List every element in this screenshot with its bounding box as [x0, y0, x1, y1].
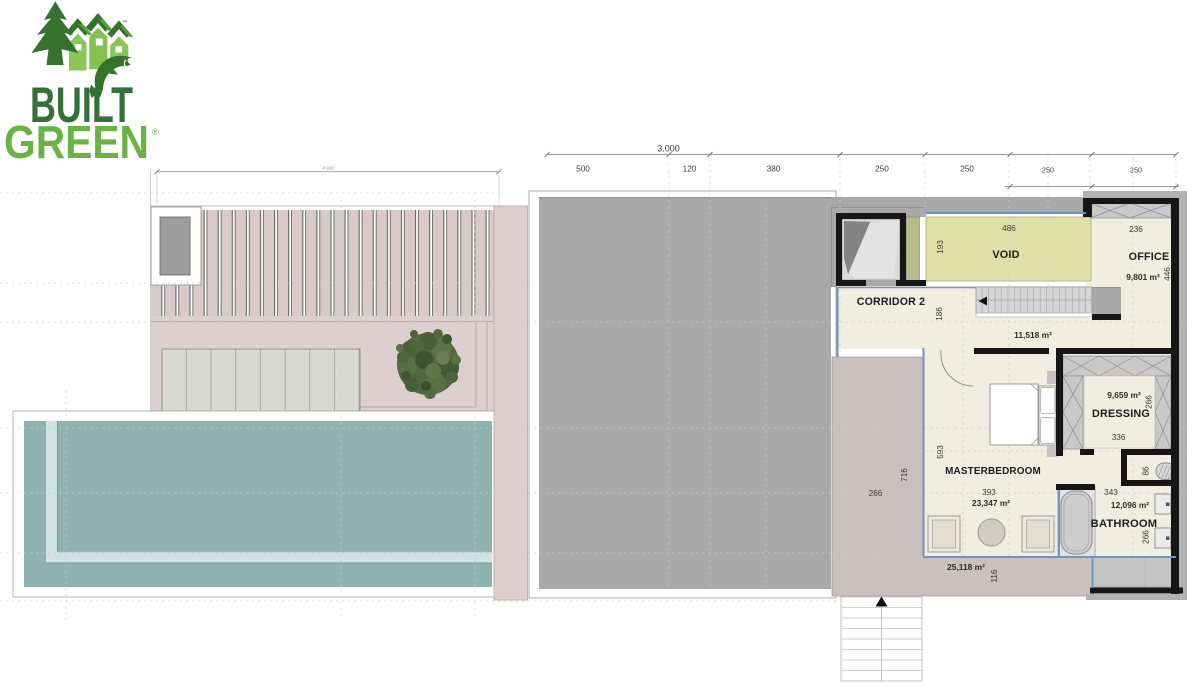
svg-text:343: 343: [1104, 488, 1118, 497]
svg-text:266: 266: [1145, 395, 1154, 409]
svg-text:446: 446: [1163, 267, 1172, 281]
svg-text:CORRIDOR 2: CORRIDOR 2: [857, 296, 926, 308]
svg-text:236: 236: [1129, 225, 1143, 234]
svg-text:BATHROOM: BATHROOM: [1091, 518, 1158, 530]
svg-text:OFFICE: OFFICE: [1129, 251, 1170, 263]
svg-text:250: 250: [875, 164, 889, 174]
svg-text:250: 250: [1130, 166, 1142, 175]
svg-text:9,659 m²: 9,659 m²: [1107, 390, 1141, 400]
svg-text:MASTERBEDROOM: MASTERBEDROOM: [945, 466, 1041, 477]
svg-text:4.920: 4.920: [322, 166, 334, 171]
svg-text:™: ™: [123, 20, 128, 26]
svg-text:9,801 m²: 9,801 m²: [1126, 272, 1160, 282]
svg-text:500: 500: [576, 164, 590, 174]
svg-text:266: 266: [869, 489, 883, 498]
svg-text:336: 336: [1112, 433, 1126, 442]
svg-text:3.000: 3.000: [657, 144, 680, 154]
svg-text:120: 120: [683, 164, 697, 174]
svg-text:716: 716: [900, 468, 909, 482]
svg-text:380: 380: [767, 164, 781, 174]
svg-text:393: 393: [982, 488, 996, 497]
svg-text:VOID: VOID: [992, 249, 1019, 261]
svg-text:DRESSING: DRESSING: [1092, 408, 1150, 420]
svg-text:266: 266: [1142, 530, 1151, 544]
svg-text:25,118 m²: 25,118 m²: [947, 562, 985, 572]
svg-text:GREEN: GREEN: [4, 116, 149, 168]
svg-text:®: ®: [152, 127, 159, 137]
svg-text:186: 186: [935, 307, 944, 321]
svg-text:193: 193: [936, 240, 945, 254]
svg-text:593: 593: [936, 445, 945, 459]
svg-text:250: 250: [960, 164, 974, 174]
svg-text:11,518 m²: 11,518 m²: [1014, 330, 1052, 340]
svg-text:23,347 m²: 23,347 m²: [972, 498, 1010, 508]
svg-text:116: 116: [990, 569, 999, 582]
svg-text:12,096 m²: 12,096 m²: [1111, 500, 1149, 510]
svg-text:86: 86: [1142, 466, 1151, 476]
svg-text:486: 486: [1002, 224, 1016, 233]
